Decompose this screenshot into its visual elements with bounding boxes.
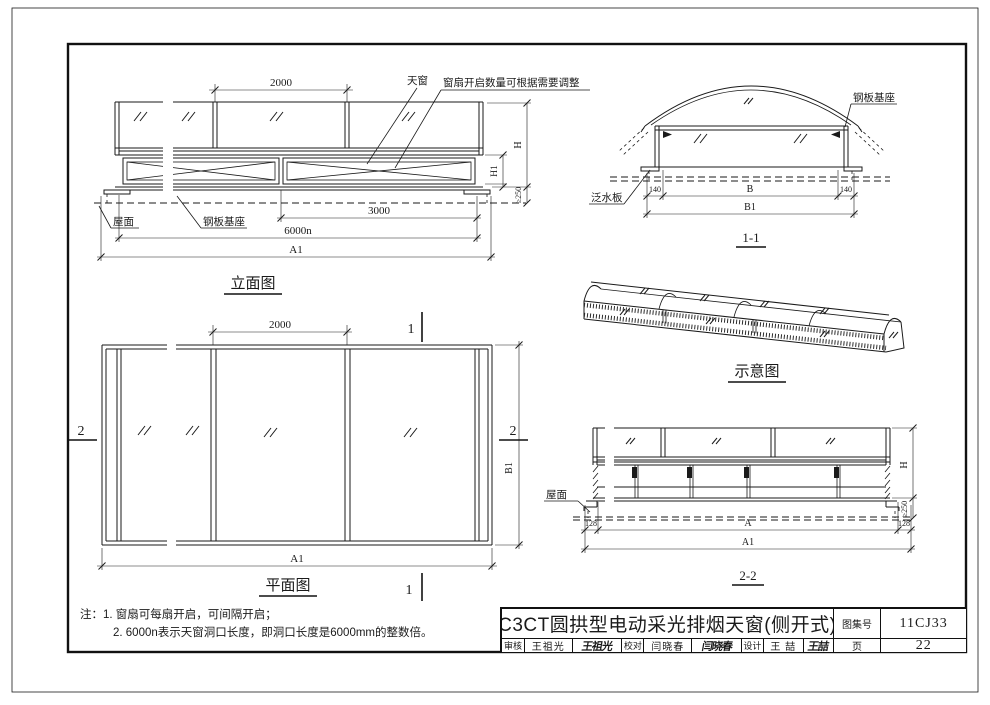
drawing-sheet: 屋面 钢板基座 天窗 窗扇开启数量可根据需要调整 2000 3000 6000n… bbox=[0, 0, 990, 705]
designer-label: 设计 bbox=[741, 639, 763, 652]
atlas-no-value: 11CJ33 bbox=[880, 609, 966, 638]
inner-border bbox=[68, 44, 966, 652]
s22-dim-128-left: 128 bbox=[585, 519, 597, 528]
plan-title: 平面图 bbox=[265, 577, 310, 594]
designer-signature: 王喆 bbox=[803, 639, 833, 652]
elevation-label-base: 钢板基座 bbox=[203, 215, 245, 228]
s11-dim-b: B bbox=[747, 184, 754, 195]
elevation-label-roof: 屋面 bbox=[113, 216, 134, 228]
general-notes: 注： 1. 窗扇可每扇开启，可间隔开启； 2. 6000n表示天窗洞口长度，即洞… bbox=[80, 606, 490, 642]
section-1-1-view: 140 B 140 B1 钢板基座 泛水板 1-1 bbox=[589, 86, 897, 247]
checker-signature: 闫晓春 bbox=[691, 639, 741, 652]
checker-label: 校对 bbox=[621, 639, 643, 652]
reviewer-label: 审核 bbox=[502, 639, 524, 652]
s22-dim-128-right: 128 bbox=[898, 519, 910, 528]
plan-mark-1-top: 1 bbox=[408, 322, 415, 337]
elevation-dim-a1: A1 bbox=[289, 244, 302, 256]
elevation-view: 屋面 钢板基座 天窗 窗扇开启数量可根据需要调整 2000 3000 6000n… bbox=[94, 74, 590, 294]
reviewer-name: 王祖光 bbox=[524, 639, 572, 652]
elevation-label-sash-note: 窗扇开启数量可根据需要调整 bbox=[443, 76, 580, 89]
s11-dim-b1: B1 bbox=[744, 202, 756, 213]
plan-dim-a1: A1 bbox=[290, 553, 303, 565]
s22-dim-a1: A1 bbox=[742, 537, 754, 548]
plan-mark-1-bottom: 1 bbox=[406, 583, 413, 598]
note-line-1: 1. 窗扇可每扇开启，可间隔开启； bbox=[103, 606, 277, 624]
s11-label-base: 钢板基座 bbox=[853, 91, 895, 104]
s22-dim-a: A bbox=[744, 518, 752, 529]
title-block: C3CT圆拱型电动采光排烟天窗(侧开式) 图集号 11CJ33 审核 王祖光 王… bbox=[500, 607, 966, 652]
elevation-dim-2000: 2000 bbox=[270, 77, 293, 89]
s22-title: 2-2 bbox=[739, 568, 756, 583]
plan-dim-b1: B1 bbox=[504, 462, 515, 474]
page-number: 22 bbox=[880, 639, 966, 652]
plan-mark-2-right: 2 bbox=[510, 424, 517, 439]
atlas-no-label: 图集号 bbox=[833, 609, 881, 638]
elevation-title: 立面图 bbox=[230, 275, 275, 292]
outer-border bbox=[12, 8, 978, 692]
elevation-dim-6000n: 6000n bbox=[284, 225, 312, 237]
elevation-dim-min250: ≥250 bbox=[514, 187, 523, 203]
s22-dim-min250: ≥250 bbox=[900, 501, 909, 517]
section-2-2-view: 屋面 128 A 128 A1 H ≥250 2-2 bbox=[544, 425, 917, 586]
s22-label-roof: 屋面 bbox=[546, 489, 567, 501]
s11-title: 1-1 bbox=[742, 230, 759, 245]
elevation-dim-h: H bbox=[513, 141, 524, 148]
note-line-2: 2. 6000n表示天窗洞口长度，即洞口长度是6000mm的整数倍。 bbox=[80, 624, 490, 642]
s11-dim-140-right: 140 bbox=[840, 185, 852, 194]
elevation-dim-h1: H1 bbox=[490, 165, 500, 177]
plan-view: 2000 A1 B1 1 1 2 2 平面图 bbox=[68, 312, 528, 601]
schematic-title: 示意图 bbox=[734, 362, 779, 380]
elevation-dim-3000: 3000 bbox=[368, 205, 391, 217]
checker-name: 闫晓春 bbox=[643, 639, 691, 652]
reviewer-signature: 王祖光 bbox=[572, 639, 622, 652]
page-label: 页 bbox=[833, 639, 881, 652]
schematic-view: 示意图 bbox=[584, 282, 904, 382]
drawing-title: C3CT圆拱型电动采光排烟天窗(侧开式) bbox=[502, 609, 833, 638]
notes-prefix: 注： bbox=[80, 606, 103, 624]
elevation-label-skylight: 天窗 bbox=[407, 74, 428, 87]
s11-dim-140-left: 140 bbox=[649, 185, 661, 194]
s11-label-flashing: 泛水板 bbox=[591, 191, 623, 204]
plan-mark-2-left: 2 bbox=[78, 424, 85, 439]
designer-name: 王 喆 bbox=[763, 639, 803, 652]
drawing-canvas: 屋面 钢板基座 天窗 窗扇开启数量可根据需要调整 2000 3000 6000n… bbox=[0, 0, 990, 705]
plan-dim-2000: 2000 bbox=[269, 319, 292, 331]
s22-dim-h: H bbox=[899, 461, 910, 468]
